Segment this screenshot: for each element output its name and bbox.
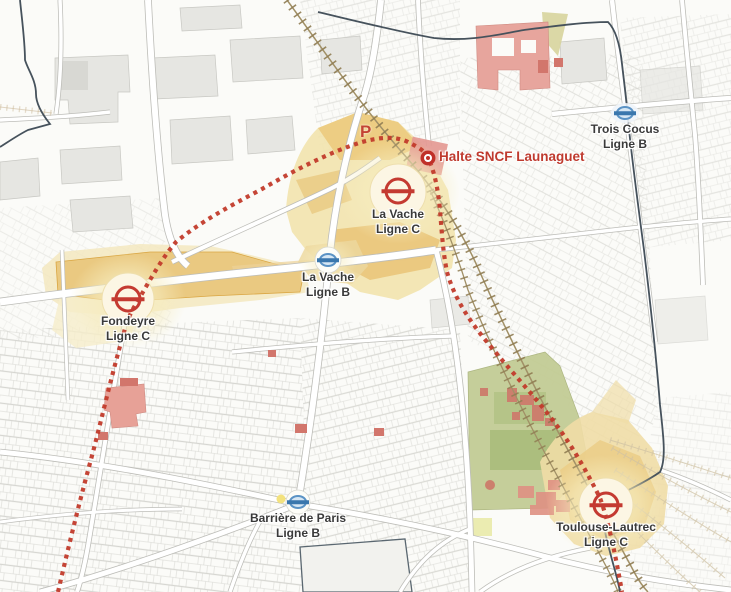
station-line: Ligne C [556,535,656,550]
station-label: Barrière de Paris Ligne B [250,511,346,540]
sncf-halt-icon [421,151,436,166]
station-name: Toulouse-Lautrec [556,520,656,535]
station-name: Trois Cocus [591,122,660,137]
urban-plan-map: Trois Cocus Ligne B Halte SNCF Launaguet… [0,0,731,592]
station-name: Barrière de Paris [250,511,346,526]
station-label: La Vache Ligne C [372,207,424,236]
station-label: Fondeyre Ligne C [101,314,155,343]
metro-roundel-ligne-b-icon [289,495,307,509]
station-name: Fondeyre [101,314,155,329]
metro-roundel-ligne-c-icon [115,286,142,313]
station-line: Ligne B [302,285,354,300]
metro-roundel-ligne-c-icon [593,492,620,519]
halte-label: Halte SNCF Launaguet [439,149,585,164]
metro-roundel-ligne-b-icon [616,106,634,120]
metro-roundel-ligne-c-icon [385,178,412,205]
station-name: La Vache [372,207,424,222]
station-label: La Vache Ligne B [302,270,354,299]
station-line: Ligne B [250,526,346,541]
station-label: Toulouse-Lautrec Ligne C [556,520,656,549]
station-label: Trois Cocus Ligne B [591,122,660,151]
station-name: La Vache [302,270,354,285]
station-line: Ligne C [101,329,155,344]
metro-roundel-ligne-b-icon [319,253,337,267]
station-line: Ligne C [372,222,424,237]
station-line: Ligne B [591,137,660,152]
parking-label: P [360,122,371,142]
